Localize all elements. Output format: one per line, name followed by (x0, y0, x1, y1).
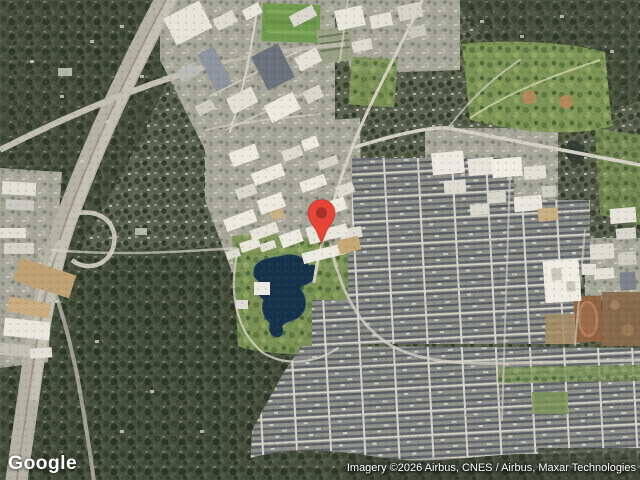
pin-body (308, 200, 335, 244)
google-logo[interactable]: Google (8, 452, 77, 475)
map-viewport[interactable]: Google Imagery ©2026 Airbus, CNES / Airb… (0, 0, 640, 480)
imagery-attribution: Imagery ©2026 Airbus, CNES / Airbus, Max… (337, 458, 640, 480)
location-pin[interactable] (306, 198, 337, 245)
pin-hole (316, 207, 327, 218)
